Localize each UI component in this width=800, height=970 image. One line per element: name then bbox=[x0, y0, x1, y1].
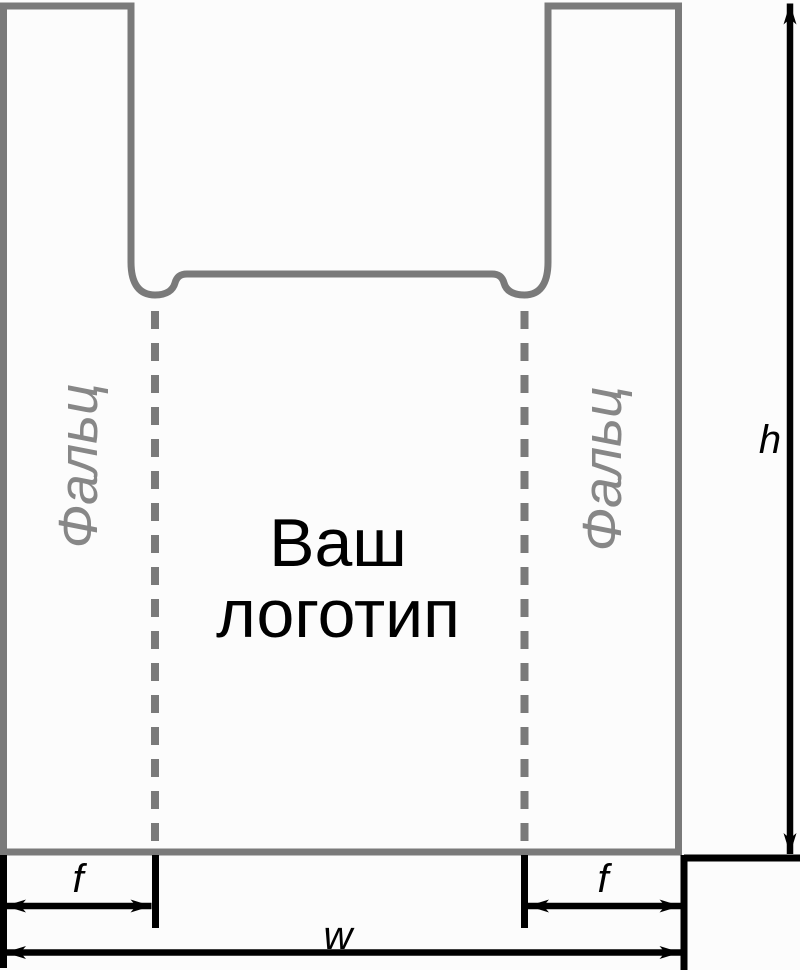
logo-placeholder-text: Ваш логотип bbox=[88, 508, 588, 650]
width-dimension-label: w bbox=[308, 913, 368, 959]
logo-placeholder-line1: Ваш bbox=[88, 508, 588, 579]
fold-label-left: Фальц bbox=[49, 316, 107, 616]
logo-placeholder-line2: логотип bbox=[88, 579, 588, 650]
bag-diagram-canvas bbox=[0, 0, 800, 970]
fold-label-right: Фальц bbox=[573, 319, 631, 619]
fold-right-dimension-label: f bbox=[573, 856, 633, 902]
height-dimension-label: h bbox=[740, 412, 800, 468]
fold-left-dimension-label: f bbox=[48, 856, 108, 902]
